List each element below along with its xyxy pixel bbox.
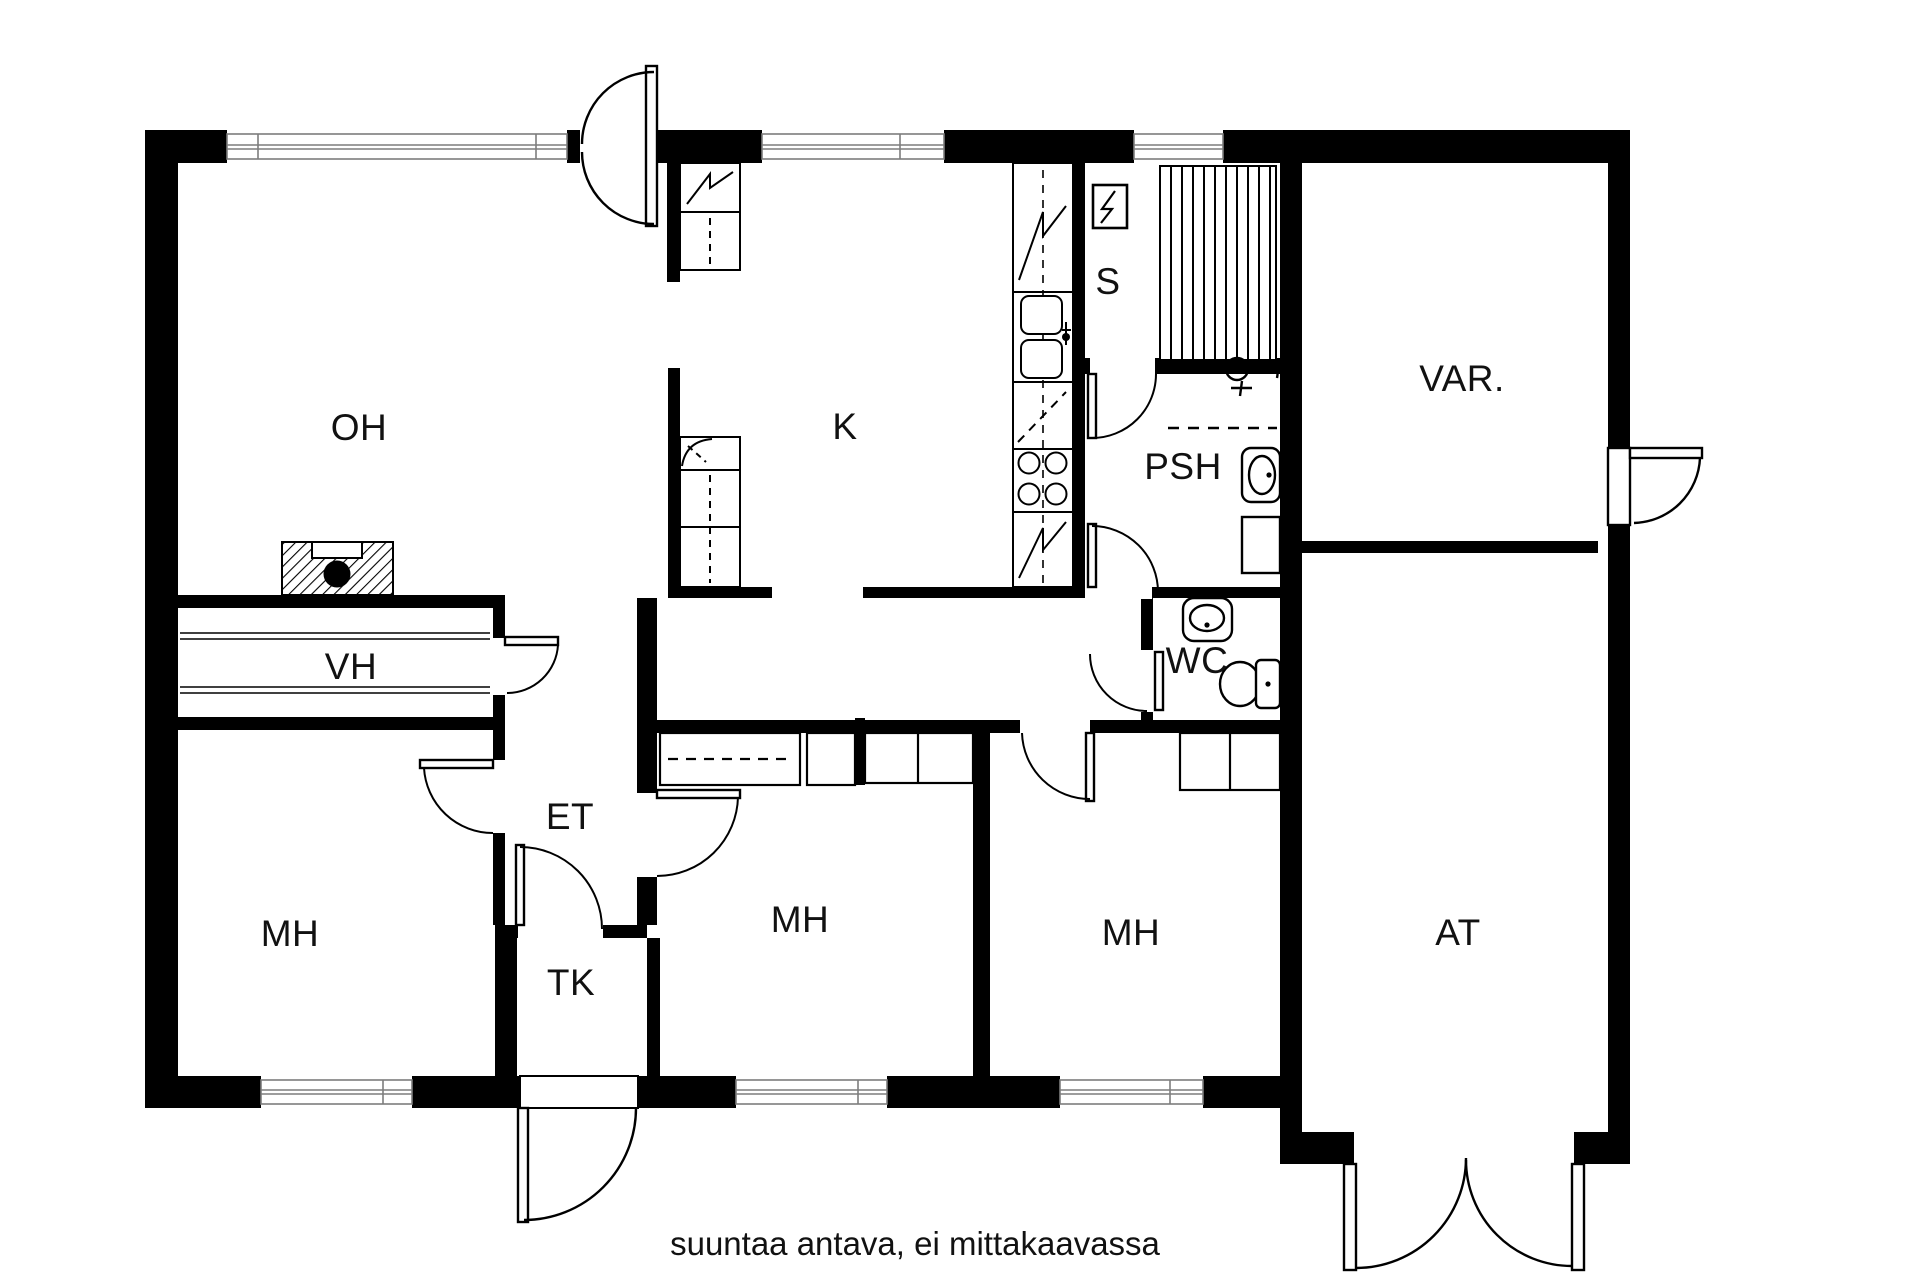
room-label-var: VAR. bbox=[1419, 358, 1505, 400]
kitchen-counter bbox=[1013, 163, 1073, 587]
toilet-icon bbox=[1220, 660, 1280, 708]
fireplace-icon bbox=[282, 542, 393, 595]
tall-cabinet bbox=[680, 437, 740, 587]
tk-exterior-door bbox=[518, 1075, 638, 1222]
floorplan-drawing bbox=[0, 0, 1920, 1280]
room-label-psh: PSH bbox=[1144, 446, 1222, 488]
room-label-oh: OH bbox=[331, 407, 388, 449]
room-label-k: K bbox=[832, 406, 857, 448]
window bbox=[1134, 131, 1223, 162]
room-label-vh: VH bbox=[325, 646, 377, 688]
vh-door bbox=[492, 637, 558, 695]
window bbox=[227, 131, 567, 162]
wc-washbasin-icon bbox=[1183, 598, 1232, 641]
floorplan-canvas: OH K S VAR. PSH WC VH ET TK MH MH MH AT … bbox=[0, 0, 1920, 1280]
sauna-benches bbox=[1160, 166, 1276, 360]
garage-door bbox=[1344, 1158, 1584, 1270]
room-label-wc: WC bbox=[1166, 640, 1229, 682]
window bbox=[736, 1077, 887, 1107]
room-label-mh-left: MH bbox=[261, 913, 320, 955]
washbasin-icon bbox=[1242, 448, 1280, 502]
psh-door bbox=[1088, 524, 1158, 599]
entrance-door bbox=[580, 66, 657, 226]
room-label-tk: TK bbox=[547, 962, 595, 1004]
sauna-door bbox=[1088, 357, 1156, 438]
room-label-mh-middle: MH bbox=[771, 899, 830, 941]
mh-middle-door bbox=[646, 790, 740, 877]
window bbox=[1060, 1077, 1203, 1107]
window bbox=[762, 131, 944, 162]
room-label-s: S bbox=[1095, 261, 1120, 303]
window bbox=[261, 1077, 412, 1107]
washing-machine-icon bbox=[1242, 517, 1280, 573]
sauna-heater-icon bbox=[1093, 185, 1127, 228]
storage-exterior-door bbox=[1607, 448, 1702, 525]
mh-left-door bbox=[420, 760, 506, 833]
wc-door bbox=[1090, 650, 1163, 712]
scale-disclaimer: suuntaa antava, ei mittakaavassa bbox=[670, 1225, 1160, 1263]
mh-right-door bbox=[1020, 719, 1094, 801]
room-label-et: ET bbox=[546, 796, 594, 838]
tk-inner-door bbox=[516, 845, 603, 939]
room-label-mh-right: MH bbox=[1102, 912, 1161, 954]
fridge-icon bbox=[680, 163, 740, 270]
closet bbox=[865, 733, 1280, 790]
wardrobe bbox=[660, 733, 855, 785]
room-label-at: AT bbox=[1435, 912, 1481, 954]
